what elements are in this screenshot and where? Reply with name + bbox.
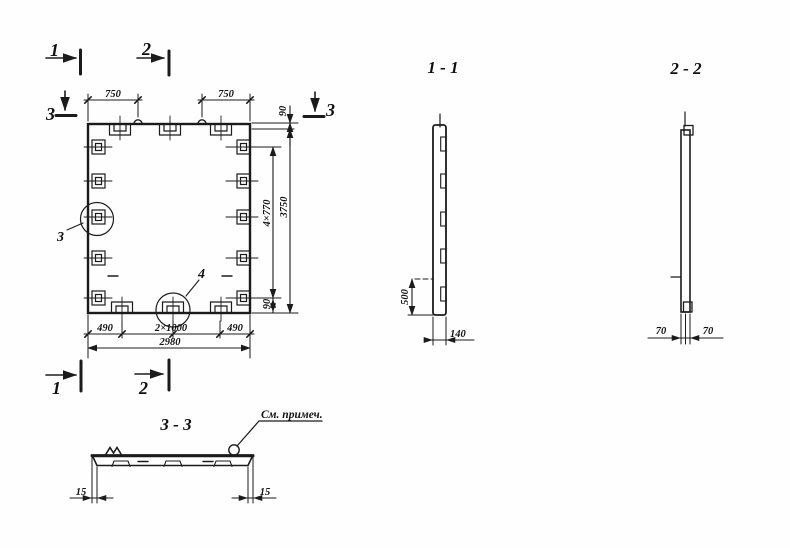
dim-text-90-bottom: 90 <box>262 298 273 309</box>
marker-label-3-left: 3 <box>45 104 55 124</box>
marker-label-2-top: 2 <box>141 39 151 59</box>
dim-text-750-left: 750 <box>105 89 122 100</box>
section-1-1: 1 - 1 500 140 <box>400 58 474 345</box>
dim-750-row: 750 750 <box>84 89 254 121</box>
right-extension-lines <box>252 123 298 313</box>
section-marker-1-bottom: 1 <box>46 361 81 398</box>
plan-view: 750 750 90 4×770 3750 <box>45 39 335 398</box>
marker-label-1-top: 1 <box>50 40 59 60</box>
dim-text-15-right: 15 <box>260 487 271 498</box>
marker-label-1-bottom: 1 <box>52 378 61 398</box>
dim-text-4x770: 4×770 <box>262 199 273 228</box>
dim-bottom-rows: 490 2×1000 490 2980 <box>84 315 254 358</box>
dim-90-top: 90 <box>278 105 290 146</box>
detail-label-4: 4 <box>197 267 205 282</box>
section-title-3-3: 3 - 3 <box>159 415 192 434</box>
note-see-note: См. примеч. <box>261 409 323 421</box>
dim-text-15-left: 15 <box>76 487 87 498</box>
section-title-2-2: 2 - 2 <box>669 59 702 78</box>
dim-140: 140 <box>424 317 474 345</box>
detail-circle-4: 4 <box>156 267 205 327</box>
section-3-3: 3 - 3 См. примеч. 15 <box>70 409 323 503</box>
dim-4x770: 4×770 <box>262 147 273 298</box>
right-embeds <box>226 140 258 305</box>
dim-500: 500 <box>400 279 433 315</box>
drawing-sheet: 750 750 90 4×770 3750 <box>0 0 790 548</box>
drawing-canvas: 750 750 90 4×770 3750 <box>0 0 790 548</box>
flattened-loop-zigzag <box>106 448 121 455</box>
dim-text-3750: 3750 <box>279 196 290 219</box>
marker-label-3-right: 3 <box>325 100 335 120</box>
dim-text-90-top: 90 <box>278 105 289 116</box>
dim-text-70-right: 70 <box>703 326 714 337</box>
section-marker-3-left: 3 <box>45 91 76 124</box>
dim-text-750-right: 750 <box>218 89 235 100</box>
lifting-loop-section <box>229 445 239 455</box>
note-leader: См. примеч. <box>229 409 323 455</box>
dim-text-490-right: 490 <box>226 323 244 334</box>
section-marker-1-top: 1 <box>46 40 81 74</box>
dim-text-70-left: 70 <box>656 326 667 337</box>
top-embeds <box>110 116 232 140</box>
detail-label-3: 3 <box>56 230 64 245</box>
section-2-2: 2 - 2 70 70 <box>648 59 723 344</box>
dim-text-140: 140 <box>450 329 467 340</box>
dim-text-2x1000: 2×1000 <box>154 323 188 334</box>
dim-text-2980: 2980 <box>159 337 182 348</box>
section-marker-3-right: 3 <box>304 92 335 120</box>
dim-3750: 3750 <box>279 123 290 313</box>
section-marker-2-top: 2 <box>137 39 169 75</box>
dim-text-490-left: 490 <box>96 323 114 334</box>
dim-15-left: 15 <box>70 457 113 503</box>
dim-70-70: 70 70 <box>648 314 723 344</box>
section-marker-2-bottom: 2 <box>135 360 169 398</box>
dim-90-bottom: 90 <box>262 298 273 313</box>
dim-text-500: 500 <box>400 288 411 305</box>
bottom-embeds <box>112 297 232 321</box>
dim-15-right: 15 <box>232 457 276 503</box>
panel-outline <box>88 124 250 313</box>
section-title-1-1: 1 - 1 <box>427 58 458 77</box>
marker-label-2-bottom: 2 <box>138 378 148 398</box>
